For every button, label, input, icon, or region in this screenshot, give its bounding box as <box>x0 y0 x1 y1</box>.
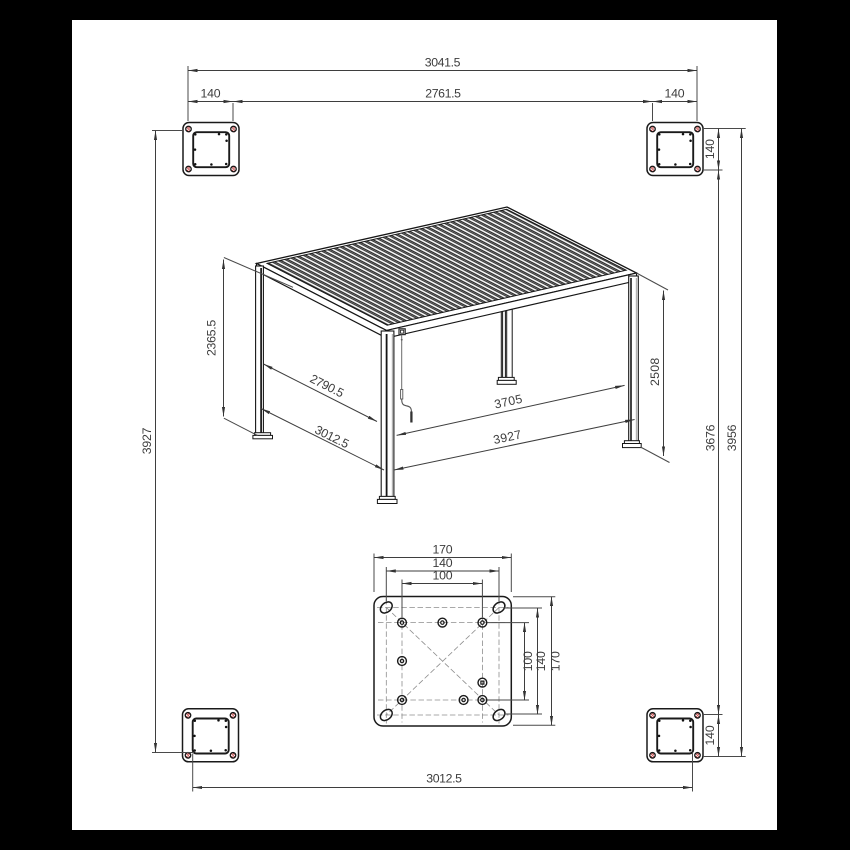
svg-text:140: 140 <box>201 86 221 100</box>
svg-text:2761.5: 2761.5 <box>425 86 461 100</box>
svg-text:100: 100 <box>433 569 453 583</box>
svg-text:170: 170 <box>548 651 562 671</box>
svg-text:170: 170 <box>433 543 453 557</box>
svg-text:100: 100 <box>521 651 535 671</box>
svg-text:140: 140 <box>703 139 717 159</box>
svg-text:2365.5: 2365.5 <box>205 320 219 356</box>
svg-text:2508: 2508 <box>648 358 662 386</box>
svg-text:3927: 3927 <box>140 427 154 454</box>
svg-text:3012.5: 3012.5 <box>426 771 462 785</box>
svg-text:140: 140 <box>703 725 717 745</box>
svg-text:140: 140 <box>665 86 685 100</box>
svg-text:140: 140 <box>534 651 548 671</box>
svg-text:3956: 3956 <box>725 424 739 451</box>
svg-text:3676: 3676 <box>704 424 718 451</box>
svg-text:3041.5: 3041.5 <box>425 56 461 70</box>
